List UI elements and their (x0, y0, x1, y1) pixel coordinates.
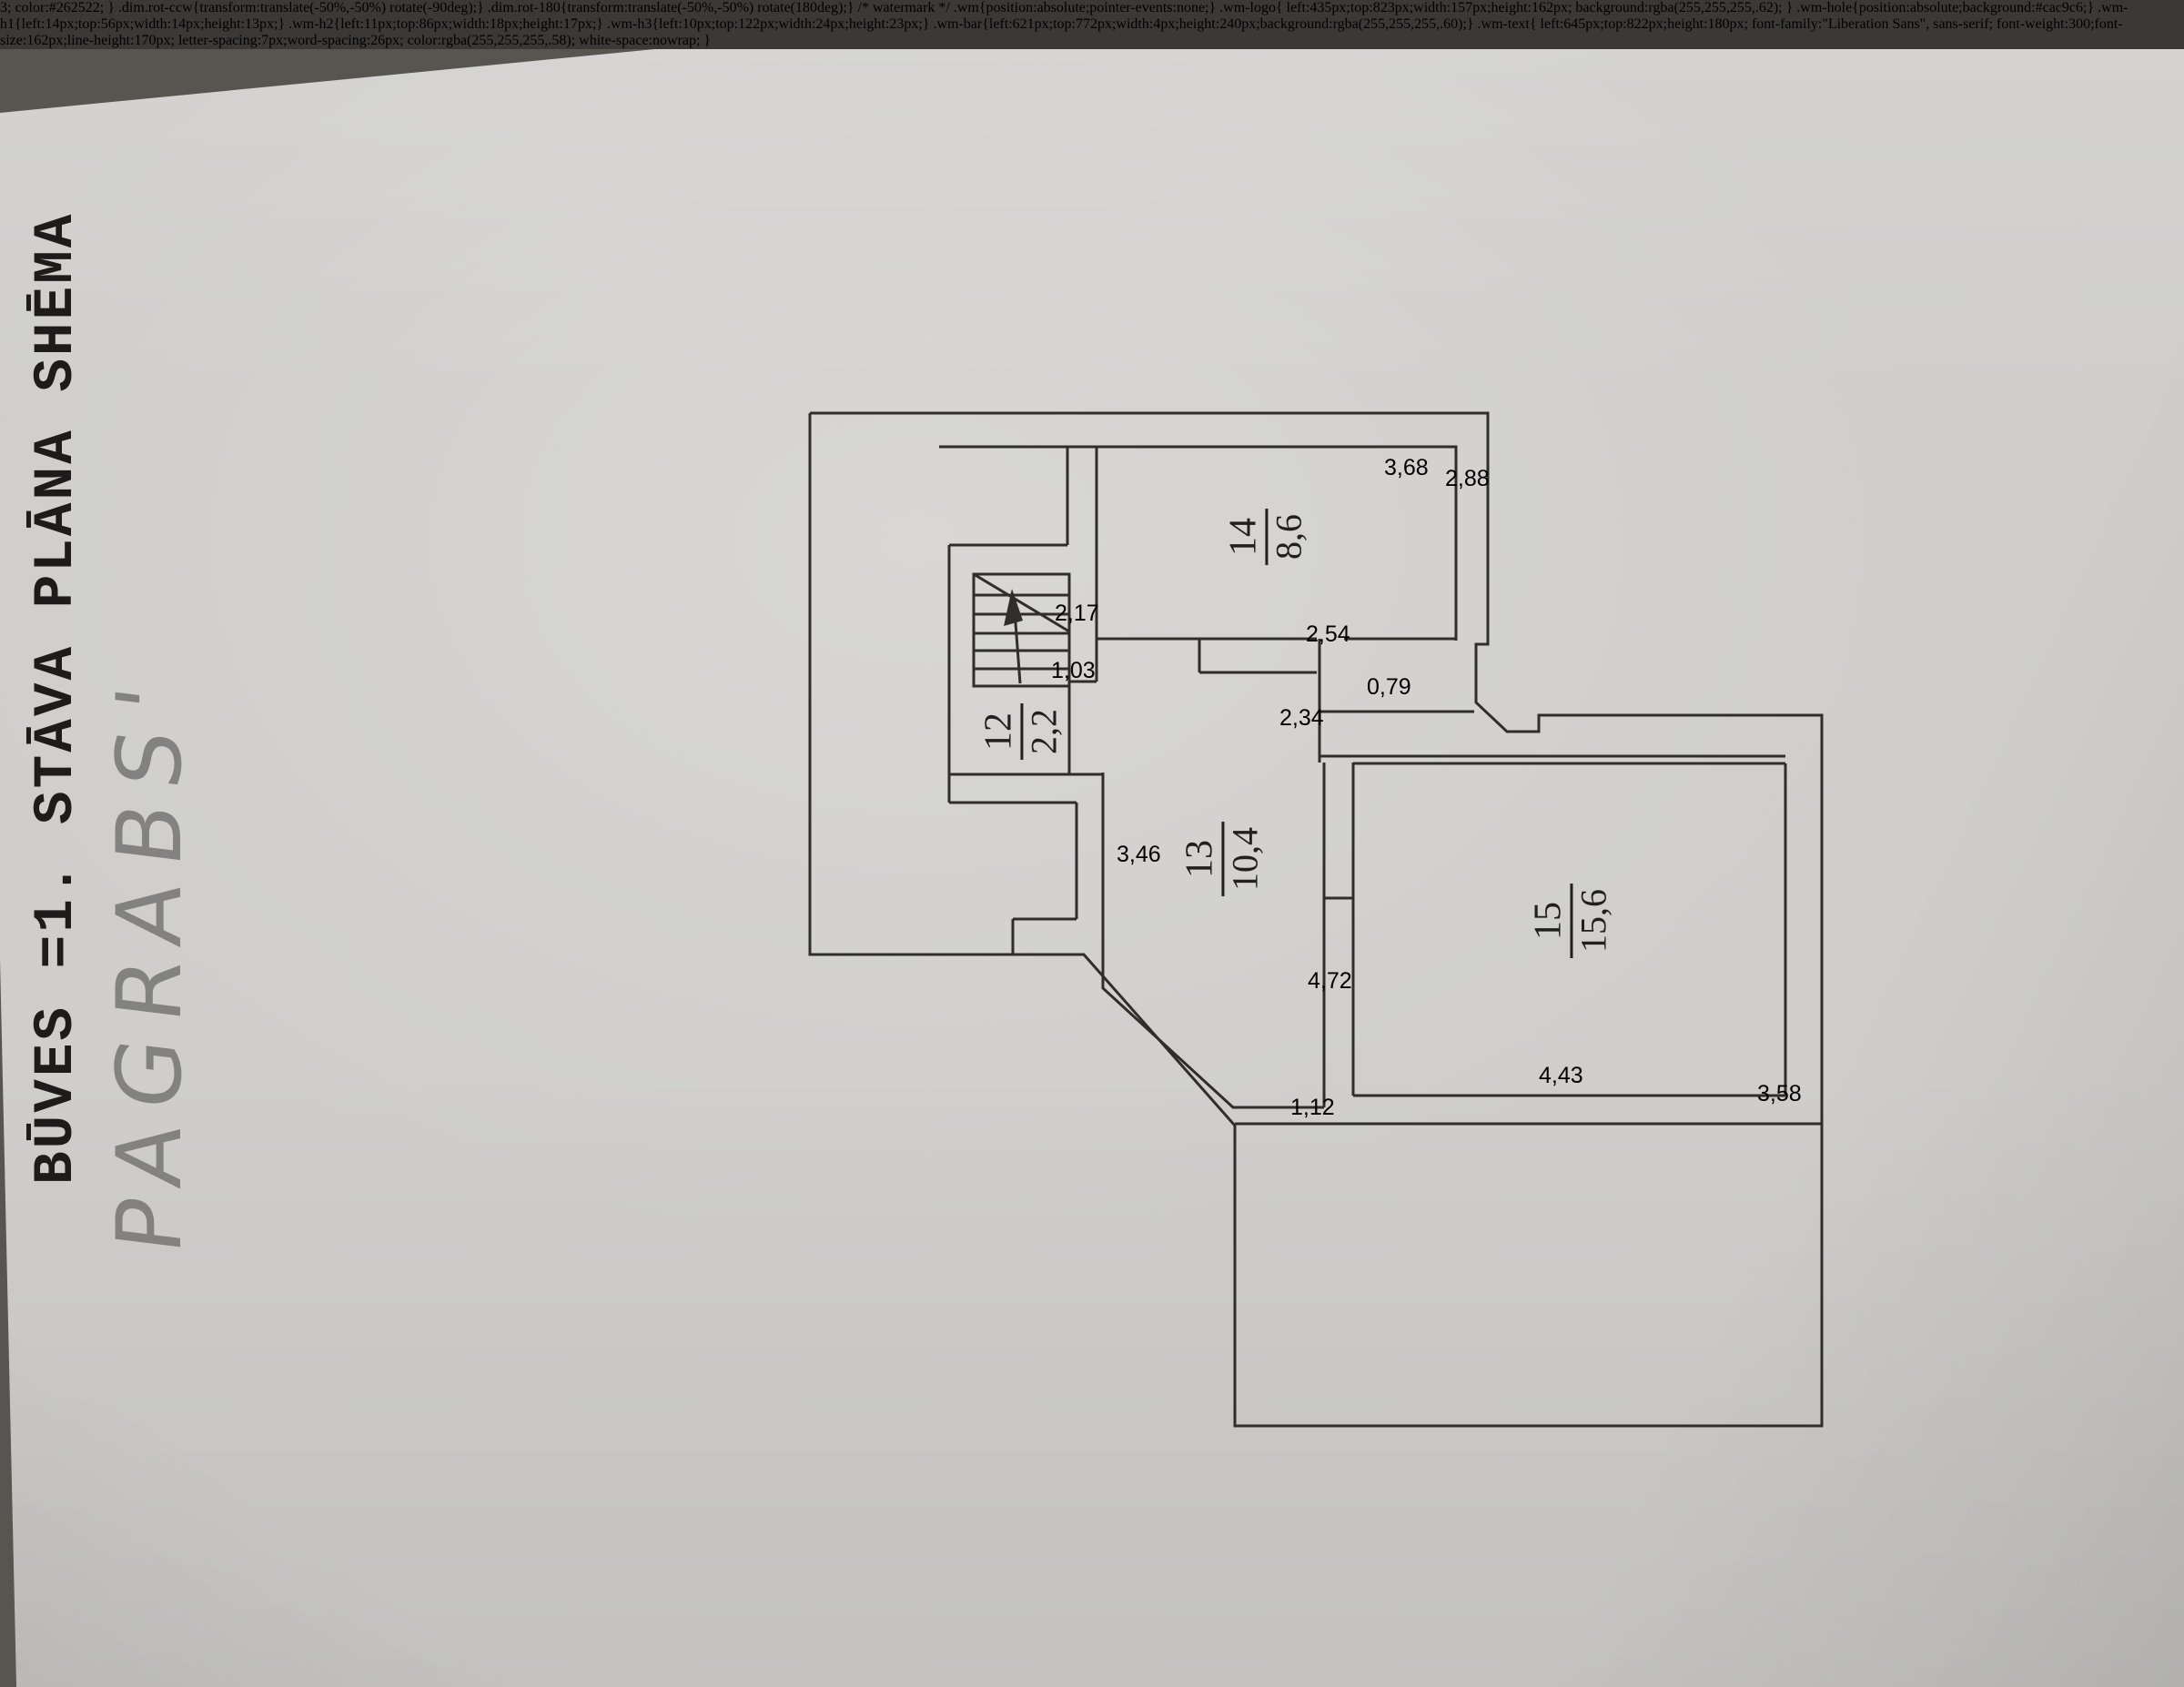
dimension-label: 4,72 (1308, 968, 1352, 995)
dimension-label: 2,17 (1055, 601, 1099, 627)
dimension-label: 3,58 (1757, 1081, 1802, 1107)
stair-enclosure-walls (949, 447, 1103, 955)
room14-bottom-wall (1097, 639, 1456, 672)
room-label-13: 13 10,4 (1179, 822, 1264, 896)
dimension-label: 4,43 (1539, 1063, 1583, 1089)
room-number: 12 (978, 703, 1018, 760)
room13-15-dividing-wall (1324, 763, 1353, 1107)
dimension-label: 2,54 (1306, 621, 1350, 648)
room-number: 14 (1223, 509, 1263, 565)
outer-wall-left (810, 413, 1235, 1126)
dimension-label: 2,88 (1445, 466, 1490, 492)
dimension-label: 1,12 (1290, 1095, 1335, 1121)
room-area: 2,2 (1026, 703, 1064, 760)
dimension-label: 1,03 (1051, 658, 1096, 684)
corridor-walls (1319, 639, 1785, 763)
lower-block (1235, 1124, 1822, 1426)
room-area: 8,6 (1270, 509, 1309, 565)
room-label-14: 14 8,6 (1223, 509, 1308, 565)
dimension-label: 0,79 (1367, 674, 1411, 701)
room-number: 13 (1179, 831, 1219, 887)
dimension-label: 2,34 (1279, 705, 1324, 732)
outer-wall (810, 413, 1822, 1124)
room-number: 15 (1528, 893, 1568, 949)
room-area: 15,6 (1575, 884, 1613, 958)
floor-plan-drawing (0, 49, 2184, 1687)
dimension-label: 3,68 (1384, 455, 1429, 481)
room-label-15: 15 15,6 (1528, 884, 1613, 958)
dimension-label: 3,46 (1117, 842, 1161, 868)
room-area: 10,4 (1227, 822, 1265, 896)
room-label-12: 12 2,2 (978, 703, 1063, 760)
scanned-floor-plan-photo: BŪVES =1. STĀVA PLĀNA SHĒMA PAGRABS' (0, 49, 2184, 1687)
